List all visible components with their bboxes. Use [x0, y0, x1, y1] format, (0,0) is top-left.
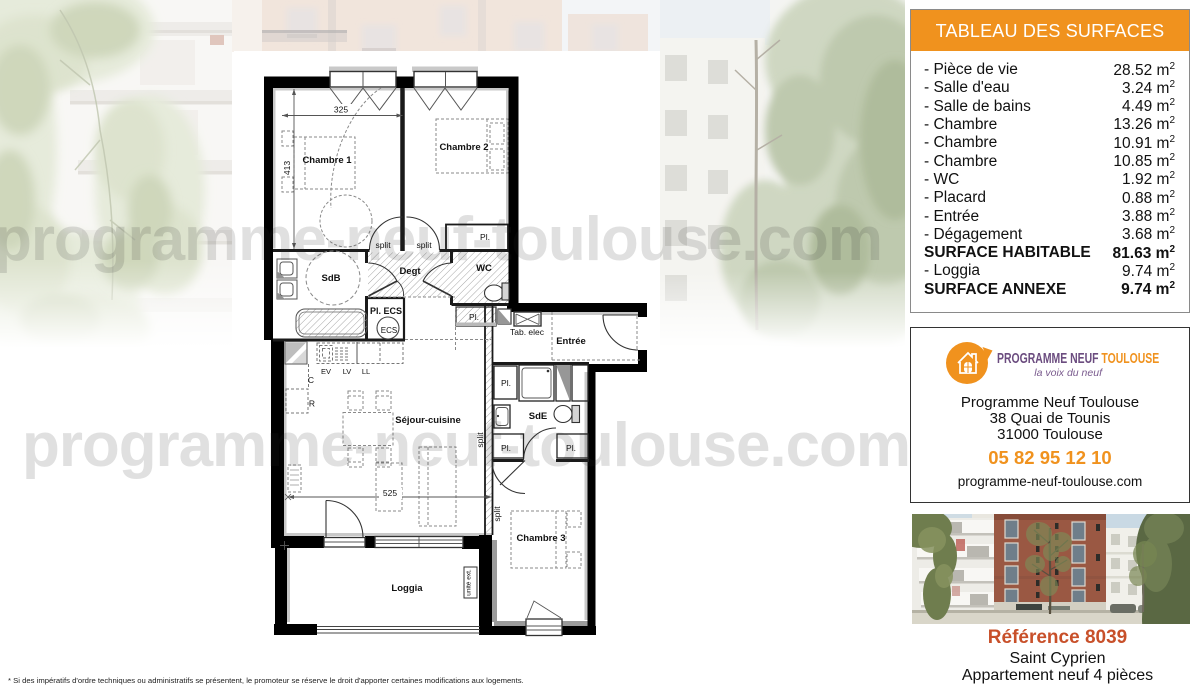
svg-text:Chambre 3: Chambre 3 — [516, 533, 565, 544]
svg-text:413: 413 — [282, 161, 292, 175]
svg-text:Chambre 2: Chambre 2 — [439, 142, 488, 153]
svg-text:Entrée: Entrée — [556, 336, 586, 347]
svg-text:Pl. ECS: Pl. ECS — [370, 306, 402, 316]
svg-text:Chambre 1: Chambre 1 — [302, 155, 352, 166]
svg-text:R: R — [309, 399, 315, 409]
svg-text:525: 525 — [383, 488, 397, 498]
svg-text:EV: EV — [321, 367, 331, 376]
svg-text:split: split — [492, 506, 502, 522]
svg-text:ECS: ECS — [381, 326, 397, 335]
svg-text:Loggia: Loggia — [391, 583, 423, 594]
svg-text:unité ext.: unité ext. — [466, 569, 473, 596]
svg-text:325: 325 — [334, 105, 348, 115]
svg-text:C: C — [308, 375, 314, 385]
svg-text:LL: LL — [362, 367, 370, 376]
svg-text:Pl.: Pl. — [469, 312, 479, 322]
svg-text:Tab. elec: Tab. elec — [510, 327, 545, 337]
svg-text:Pl.: Pl. — [501, 378, 511, 388]
svg-text:LV: LV — [343, 367, 352, 376]
